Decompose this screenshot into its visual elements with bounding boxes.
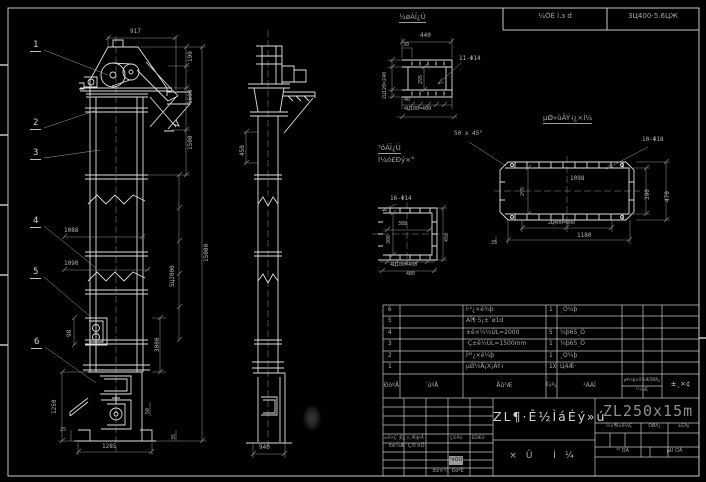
dim-15000: 15000 [204,244,210,262]
sig-approve-label: ÉóºË [452,469,464,474]
dim-1088: 1088 [64,228,78,234]
square-dim-388: 388 [398,222,407,227]
parts-row-mat: ¼þ65¸Ö [560,330,585,336]
dim-470: 470 [665,191,671,202]
dim-390: 390 [645,189,651,200]
dim-50: 50 [146,408,151,414]
balloon-1: 1 [30,41,41,52]
chamfer-note: 50 x 45° [454,131,483,137]
screen-smudge [303,405,321,431]
parts-row-name: µØ½Å¡Х¡ÂÝ˨ [466,364,504,370]
square-dim-450: 450 [445,233,450,242]
inlet-dim-2x120: 2Ц120=240 [383,72,388,99]
dim-1090: 1090 [64,261,78,267]
dim-2x400: 2Ц400=800 [548,221,575,226]
parts-header-num: ÐòºÅ [383,383,400,389]
dim-1500: 1500 [188,136,194,150]
side-view [246,46,315,443]
dimension-lines [58,35,670,458]
stage-mark-label: ½×¶Î±ê¼Ç [597,425,641,430]
drawing-number: ZL250x15m [598,402,698,420]
dim-3000: 3000 [155,338,161,352]
dim-1180: 1180 [577,233,591,239]
inlet-holes-note: 11-Φ14 [459,56,481,62]
drawing-title: ZL¶·Ê½ÌáÉý»ú [493,409,595,424]
parts-row-num: 2 [388,353,392,359]
square-dim-4x100: 4Ц100=400 [390,263,417,268]
rev-header-cell-4: ÈÕÆÚ [472,436,485,440]
sheet-header-cell-2: 3Ц400-5.6ЦЖ [607,13,699,20]
dim-5x2000: 5Ц2000 [170,265,176,287]
foundation-holes-note: 10-Φ18 [642,137,664,143]
dim-450: 450 [240,145,246,156]
rev-header-cell-3: Ç©Ãû [450,436,462,440]
parts-row-mat: ¼þ65¸Ö [560,341,585,347]
scale-label: ±ÈÀý [668,425,699,430]
parts-row-mat: ¸Ö¼þ [560,307,577,313]
inlet-dim-30: 30 [403,43,409,48]
rev-header-cell-1: ±ê¼Ç´¦Êý [384,436,405,440]
sheets-number-label: µÚ ÕÅ [650,449,699,454]
dim-25: 25 [60,428,66,433]
parts-row-name: ÁÏ¶·5¡±´ø1d [466,318,503,324]
dim-940: 940 [259,445,270,451]
inlet-dim-40: 40 [404,98,410,103]
dim-1250: 1250 [52,400,58,414]
sheets-total-label: ¹² ÕÅ [595,449,650,454]
parts-row-name: Í·²¿×é¼þ [466,307,494,313]
parts-row-num: 1 [388,364,392,370]
sig-design-label: Éè¼Æ [389,444,405,449]
dim-1285: 1285 [102,444,116,450]
parts-row-num: 5 [388,318,392,324]
sheet-header-cell-1: ¼ÓÈ Ì.з d [503,13,607,20]
foundation-dim-295: 295 [521,187,526,196]
process-chip: ¹¤ÒÕ [449,456,463,465]
cad-sheet: ¼ÓÈ Ì.з d 3Ц400-5.6ЦЖ 1 2 3 4 5 6 917 19… [0,0,706,482]
square-dim-300: 300 [387,235,392,244]
inlet-label: ½øÁÏ¿Ú [399,14,426,23]
square-dim-480: 480 [406,272,415,277]
dim-1590: 1590 [188,90,194,104]
outlet-label-line2: Í¼ó£Ðý×° [378,157,415,164]
balloon-5: 5 [30,268,41,279]
parts-header-name: Ãû³Æ [463,383,546,389]
dim-190: 190 [188,51,194,62]
dim-98: 98 [67,330,73,337]
parts-row-qty: 5 [549,330,553,336]
outlet-label-line1: ³öÁÏ¿Ú [378,145,401,154]
parts-header-code: ´úºÅ [400,383,463,389]
inlet-dim-295: 295 [419,75,424,84]
parts-row-mat: ¸Ö¼þ [560,353,577,359]
parts-row-name: ·Ç±ê½ÚL=1500mm [466,341,526,347]
parts-row-qty: 1 [549,341,553,347]
parts-row-num: 3 [388,341,392,347]
inlet-dim-4x100: 4Ц100=400 [404,107,431,112]
dim-917: 917 [130,29,141,35]
balloon-4: 4 [30,217,41,228]
parts-row-name: ±ê×¼½ÚL=2000 [466,330,519,336]
sig-signature-label: Ç©×Ö [408,444,425,449]
balloon-2: 2 [30,119,41,130]
inlet-dim-440: 440 [420,33,431,39]
parts-row-num: 6 [388,307,392,313]
drawing-subtitle: ×Ü Í¼ [497,451,595,461]
parts-row-name: Î²²¿×é¼þ [466,353,494,359]
parts-row-qty: 1 [549,353,553,359]
weight-label: ÖØÁ¿ [641,425,668,430]
parts-header-weight-top: µ¥¼þ×Ü¼ÆÖØÁ¿ [622,378,662,382]
front-view [70,40,190,441]
foundation-label: µØ»ùÂÝ˨¿×Í¼ [543,115,592,124]
foundation-dim-35: 35 [491,241,497,246]
rev-header-cell-2: ¸ü¸ÄÎļþºÅ [405,436,424,440]
square-holes-note: 16-Φ14 [390,196,412,202]
balloon-6: 6 [31,338,42,349]
parts-header-weight-bottom: ¹²¼Æ [622,389,662,394]
parts-header-mat: ²ÄÁÏ [557,383,622,389]
dim-1098: 1098 [570,176,584,182]
parts-row-num: 4 [388,330,392,336]
parts-row-qty: 1 [549,307,553,313]
parts-row-qty: 1X [549,364,556,370]
parts-header-note: ±¸×¢ [662,381,699,388]
dim-35: 35 [172,434,177,440]
sig-standard-label: ±ê×¼ [432,469,448,474]
balloon-3: 3 [30,149,41,160]
leader-lines [44,50,648,383]
parts-row-mat: Ц4Æ· [560,364,576,370]
